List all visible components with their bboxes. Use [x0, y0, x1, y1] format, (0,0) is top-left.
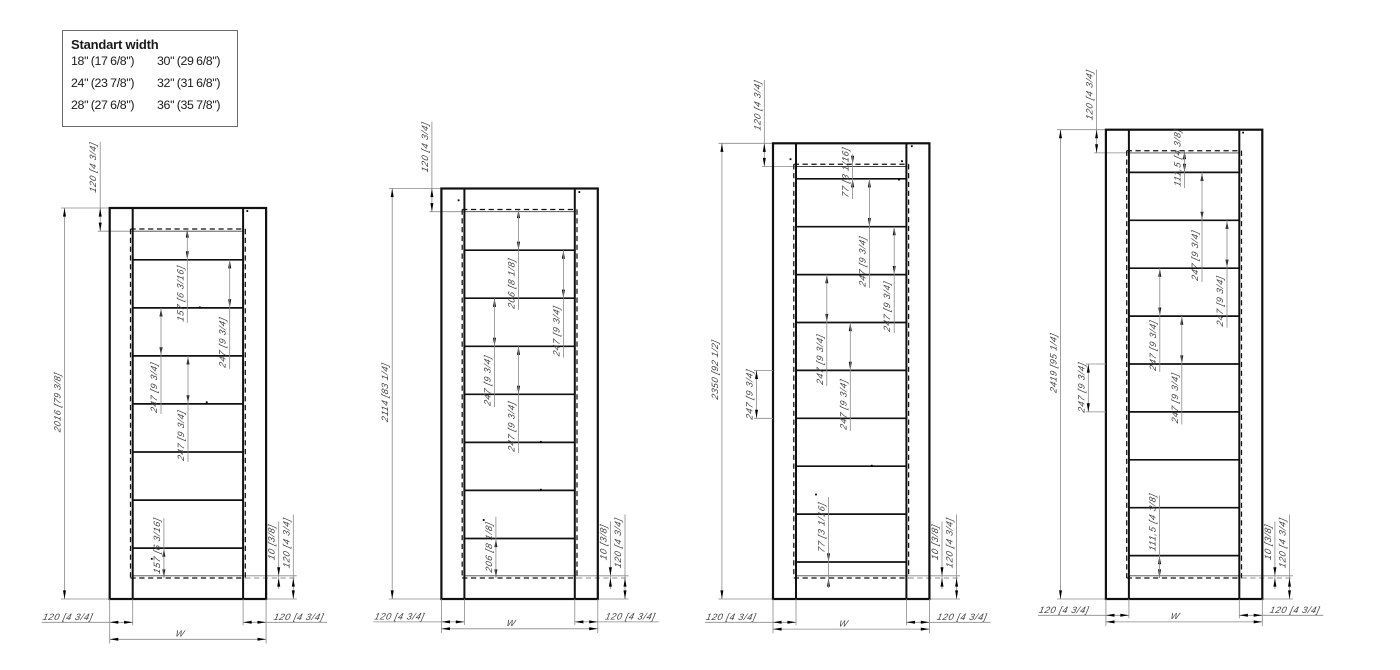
svg-text:206 [8 1/8]: 206 [8 1/8] [507, 257, 517, 310]
svg-text:2350 [92 1/2]: 2350 [92 1/2] [710, 339, 720, 401]
svg-text:120 [4 3/4]: 120 [4 3/4] [613, 517, 623, 569]
svg-text:157 [6 3/16]: 157 [6 3/16] [175, 264, 185, 322]
svg-text:247 [9 3/4]: 247 [9 3/4] [149, 361, 159, 414]
svg-text:W: W [506, 618, 518, 628]
svg-text:247 [9 3/4]: 247 [9 3/4] [815, 333, 825, 386]
svg-text:10 [3/8]: 10 [3/8] [930, 523, 940, 561]
svg-text:120 [4 3/4]: 120 [4 3/4] [273, 612, 325, 622]
svg-text:206 [8 1/8]: 206 [8 1/8] [484, 521, 494, 574]
svg-text:2016 [79 3/8]: 2016 [79 3/8] [53, 372, 63, 434]
svg-text:77 [3 1/16]: 77 [3 1/16] [817, 501, 827, 553]
svg-text:247 [9 3/4]: 247 [9 3/4] [483, 354, 493, 407]
svg-text:120 [4 3/4]: 120 [4 3/4] [1038, 605, 1090, 615]
svg-text:10 [3/8]: 10 [3/8] [599, 523, 609, 561]
svg-text:247 [9 3/4]: 247 [9 3/4] [507, 400, 517, 453]
svg-text:2114 [83 1/4]: 2114 [83 1/4] [380, 362, 390, 424]
svg-text:W: W [175, 629, 187, 639]
svg-text:157 [6 3/16]: 157 [6 3/16] [152, 517, 162, 575]
svg-text:120 [4 3/4]: 120 [4 3/4] [88, 141, 98, 193]
svg-text:120 [4 3/4]: 120 [4 3/4] [373, 612, 425, 622]
svg-text:W: W [838, 618, 850, 628]
svg-text:247 [9 3/4]: 247 [9 3/4] [552, 305, 562, 358]
svg-text:247 [9 3/4]: 247 [9 3/4] [745, 368, 755, 421]
svg-text:W: W [1170, 611, 1182, 621]
svg-text:77 [3 1/16]: 77 [3 1/16] [841, 146, 851, 198]
svg-text:247 [9 3/4]: 247 [9 3/4] [176, 409, 186, 462]
svg-text:120 [4 3/4]: 120 [4 3/4] [1269, 605, 1321, 615]
svg-text:247 [9 3/4]: 247 [9 3/4] [1190, 229, 1200, 282]
svg-text:120 [4 3/4]: 120 [4 3/4] [752, 79, 762, 131]
svg-text:120 [4 3/4]: 120 [4 3/4] [1278, 517, 1288, 569]
svg-text:120 [4 3/4]: 120 [4 3/4] [42, 612, 94, 622]
svg-text:10 [3/8]: 10 [3/8] [267, 523, 277, 561]
svg-text:120 [4 3/4]: 120 [4 3/4] [604, 612, 656, 622]
svg-text:111,5 [4 3/8]: 111,5 [4 3/8] [1173, 128, 1183, 188]
svg-text:120 [4 3/4]: 120 [4 3/4] [420, 121, 430, 173]
svg-text:247 [9 3/4]: 247 [9 3/4] [1148, 319, 1158, 372]
svg-text:247 [9 3/4]: 247 [9 3/4] [882, 280, 892, 333]
svg-text:120 [4 3/4]: 120 [4 3/4] [281, 517, 291, 569]
svg-text:247 [9 3/4]: 247 [9 3/4] [1076, 361, 1086, 414]
svg-text:247 [9 3/4]: 247 [9 3/4] [838, 378, 848, 431]
svg-text:111,5 [4 3/8]: 111,5 [4 3/8] [1148, 492, 1158, 552]
svg-text:247 [9 3/4]: 247 [9 3/4] [1215, 275, 1225, 328]
svg-text:120 [4 3/4]: 120 [4 3/4] [945, 517, 955, 569]
svg-text:2419 [95 1/4]: 2419 [95 1/4] [1049, 332, 1059, 394]
svg-text:247 [9 3/4]: 247 [9 3/4] [858, 235, 868, 288]
svg-text:120 [4 3/4]: 120 [4 3/4] [936, 612, 988, 622]
svg-text:120 [4 3/4]: 120 [4 3/4] [705, 612, 757, 622]
svg-text:247 [9 3/4]: 247 [9 3/4] [218, 316, 228, 369]
svg-text:10 [3/8]: 10 [3/8] [1263, 523, 1273, 561]
svg-text:247 [9 3/4]: 247 [9 3/4] [1170, 372, 1180, 425]
svg-text:120 [4 3/4]: 120 [4 3/4] [1085, 69, 1095, 121]
